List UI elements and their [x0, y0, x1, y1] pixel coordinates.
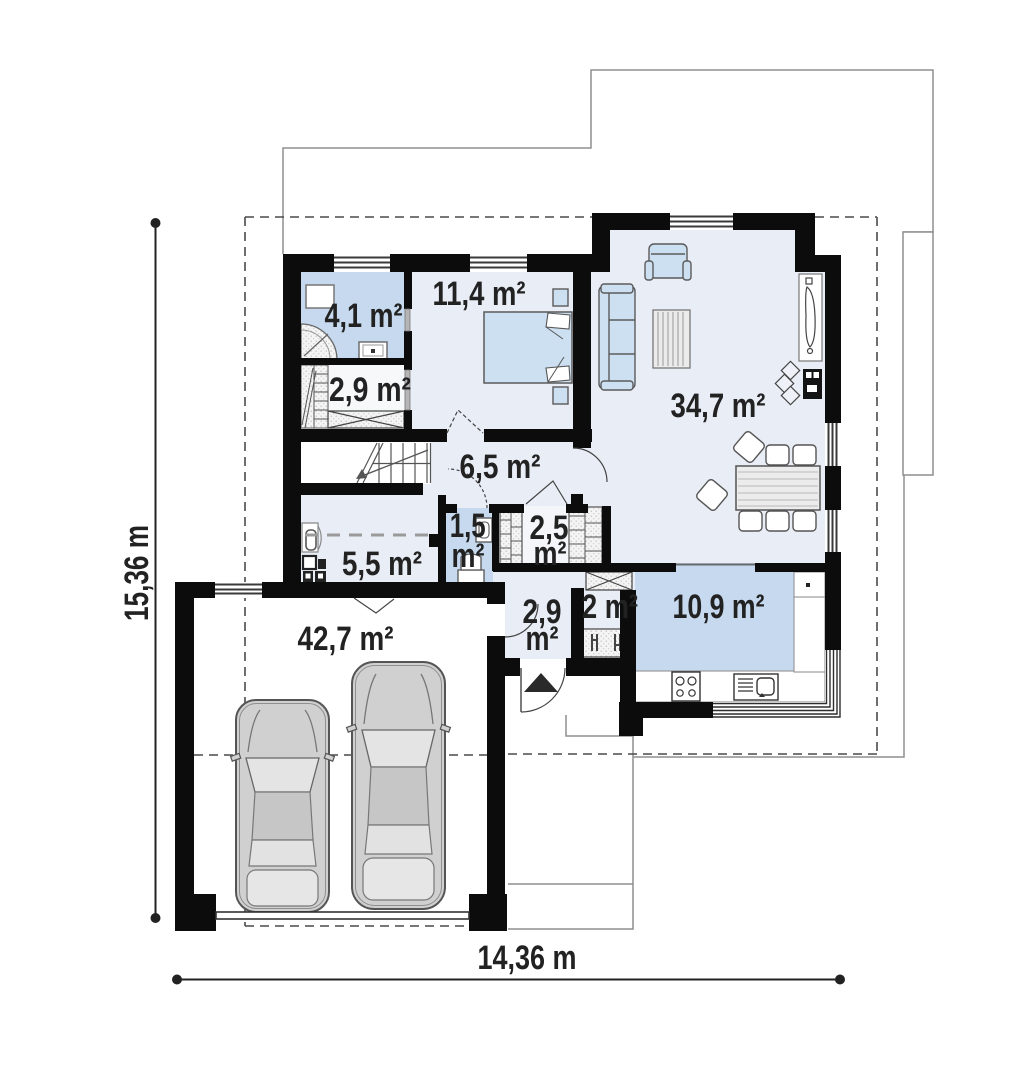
svg-text:2 m²: 2 m²	[582, 588, 638, 626]
svg-text:15,36 m: 15,36 m	[118, 525, 156, 621]
svg-text:11,4 m²: 11,4 m²	[433, 275, 526, 313]
svg-text:5,5 m²: 5,5 m²	[342, 545, 422, 583]
svg-text:m²: m²	[452, 537, 485, 575]
svg-text:4,1 m²: 4,1 m²	[325, 297, 403, 335]
svg-text:m²: m²	[526, 620, 559, 658]
svg-text:42,7 m²: 42,7 m²	[298, 620, 394, 658]
svg-text:14,36 m: 14,36 m	[478, 939, 577, 977]
svg-text:10,9 m²: 10,9 m²	[673, 588, 765, 626]
svg-text:m²: m²	[534, 535, 567, 573]
svg-text:2,9 m²: 2,9 m²	[329, 371, 411, 409]
svg-text:6,5 m²: 6,5 m²	[460, 448, 541, 486]
svg-text:34,7 m²: 34,7 m²	[671, 387, 766, 425]
